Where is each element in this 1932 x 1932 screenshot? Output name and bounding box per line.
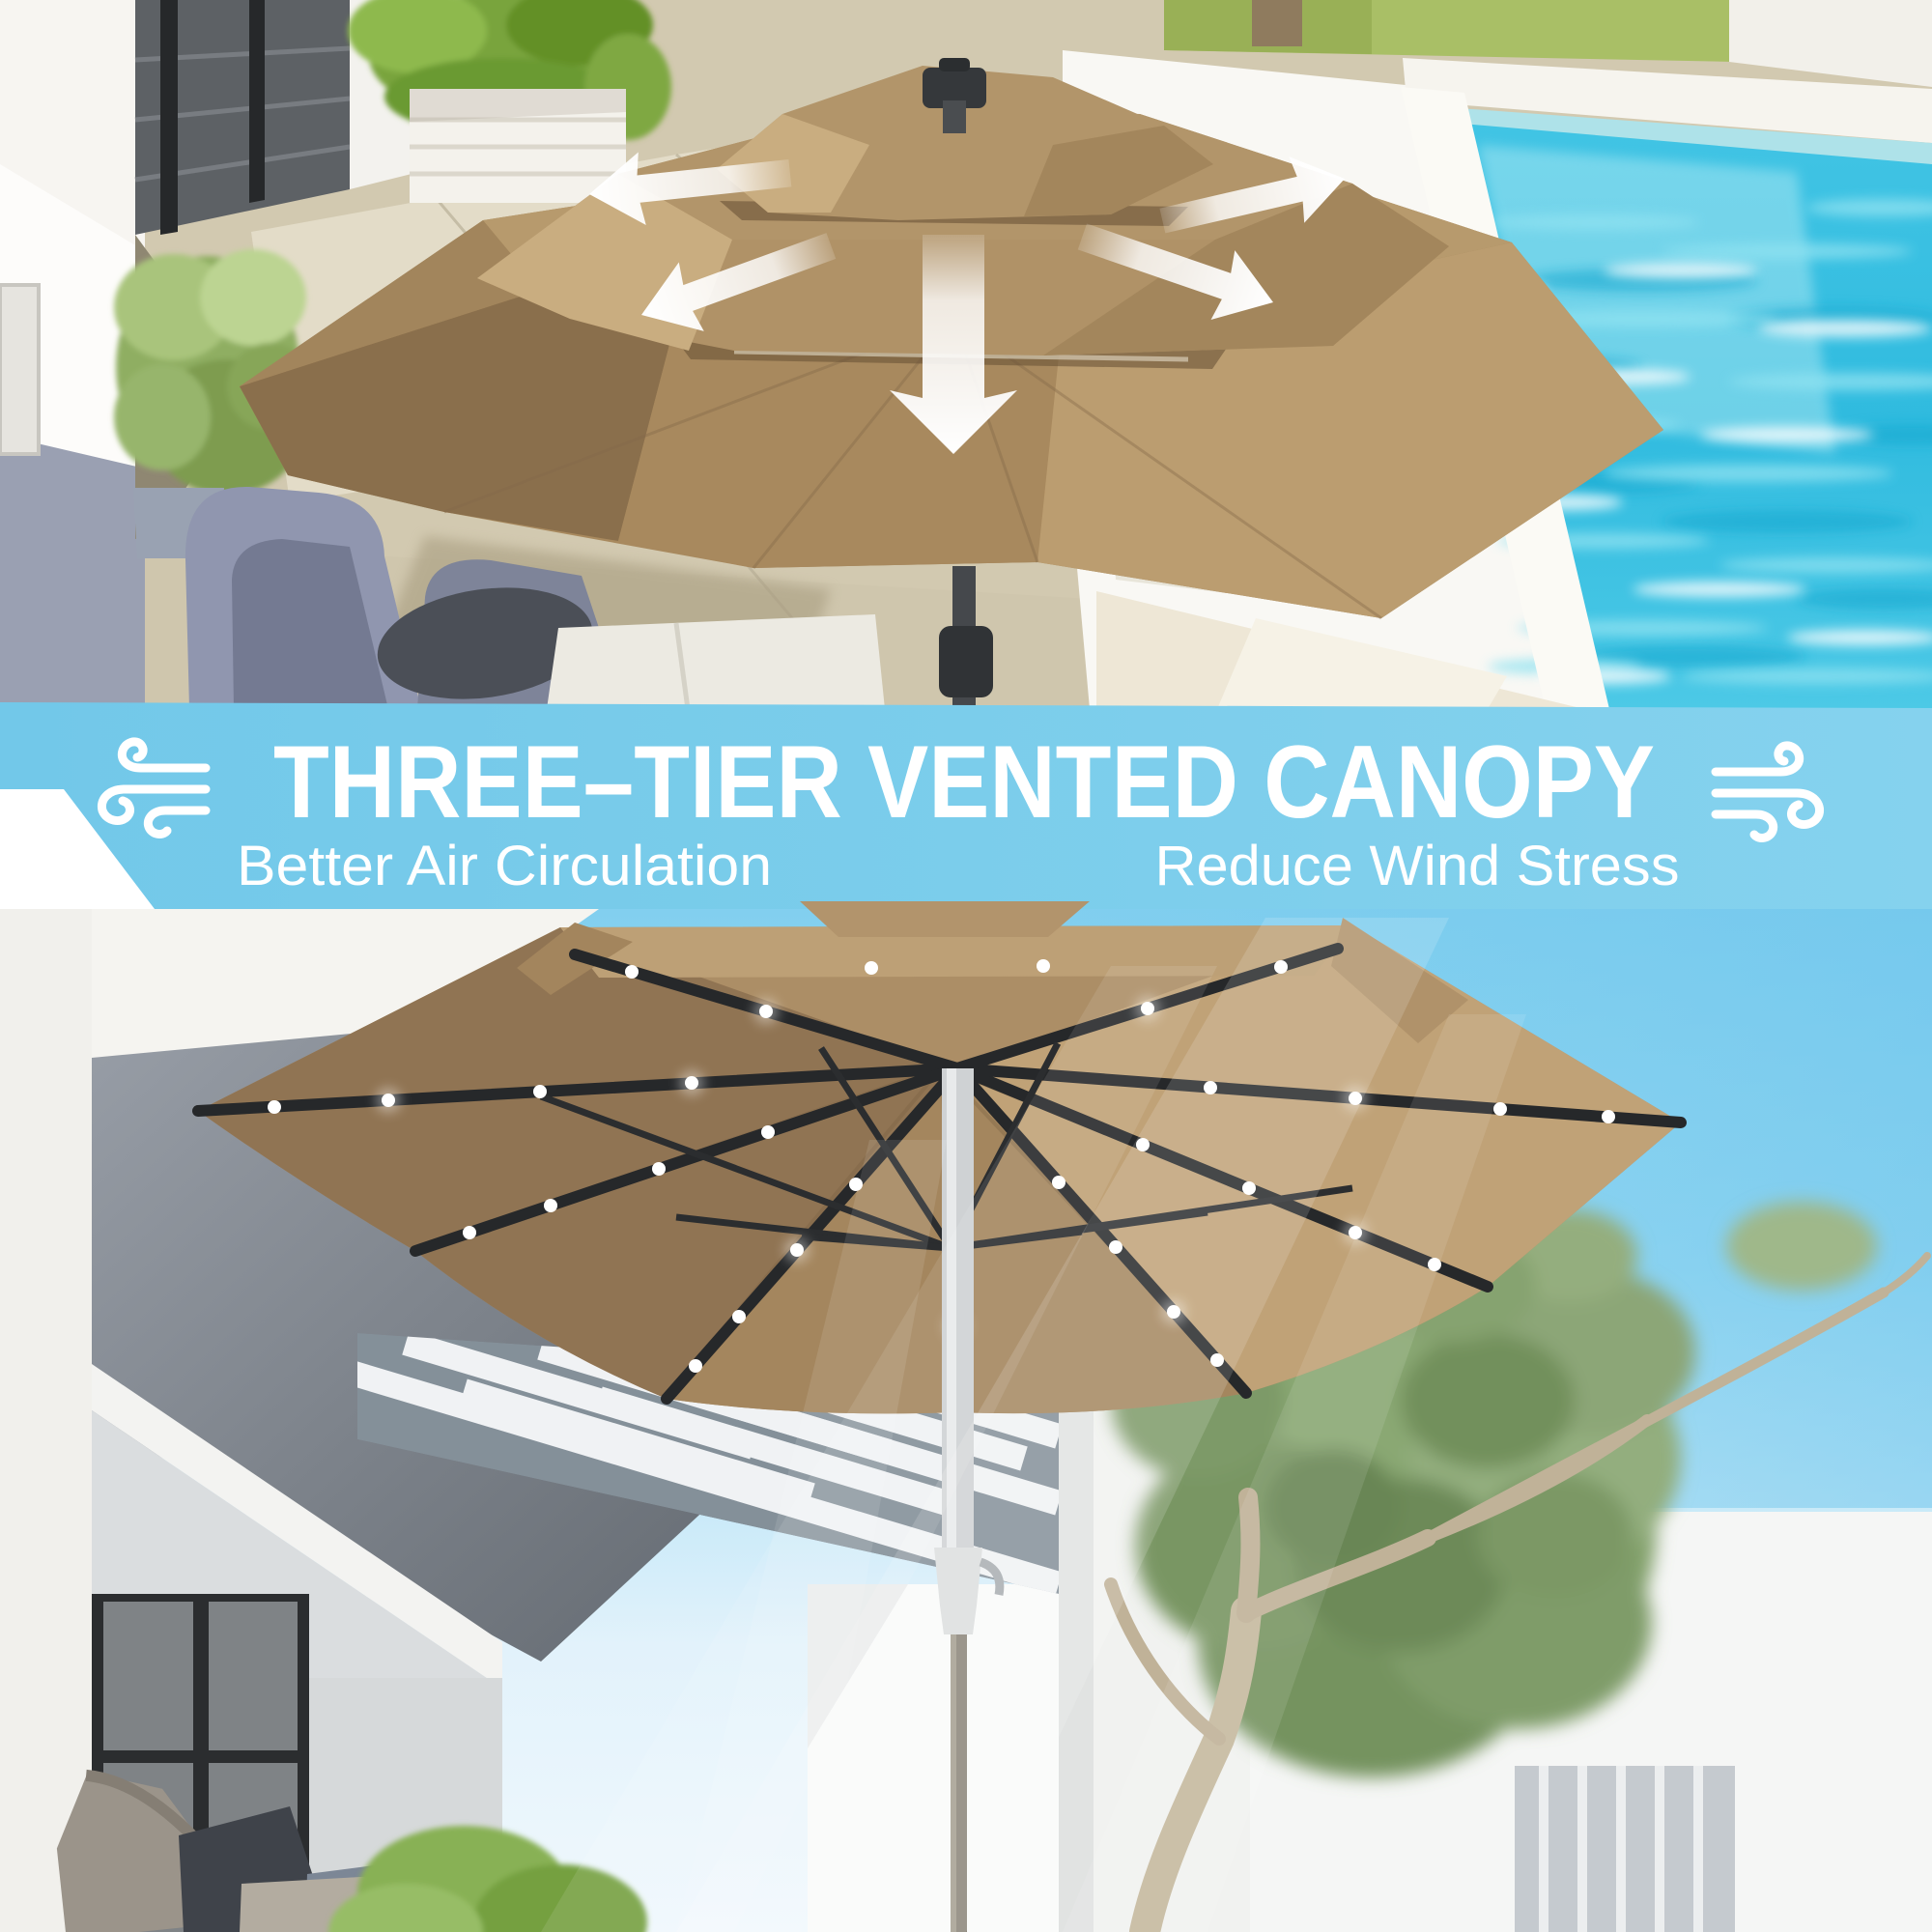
svg-text:Reduce Wind Stress: Reduce Wind Stress — [1155, 835, 1680, 897]
svg-text:Better Air Circulation: Better Air Circulation — [237, 835, 772, 897]
svg-text:THREE–TIER VENTED CANOPY: THREE–TIER VENTED CANOPY — [273, 724, 1655, 839]
